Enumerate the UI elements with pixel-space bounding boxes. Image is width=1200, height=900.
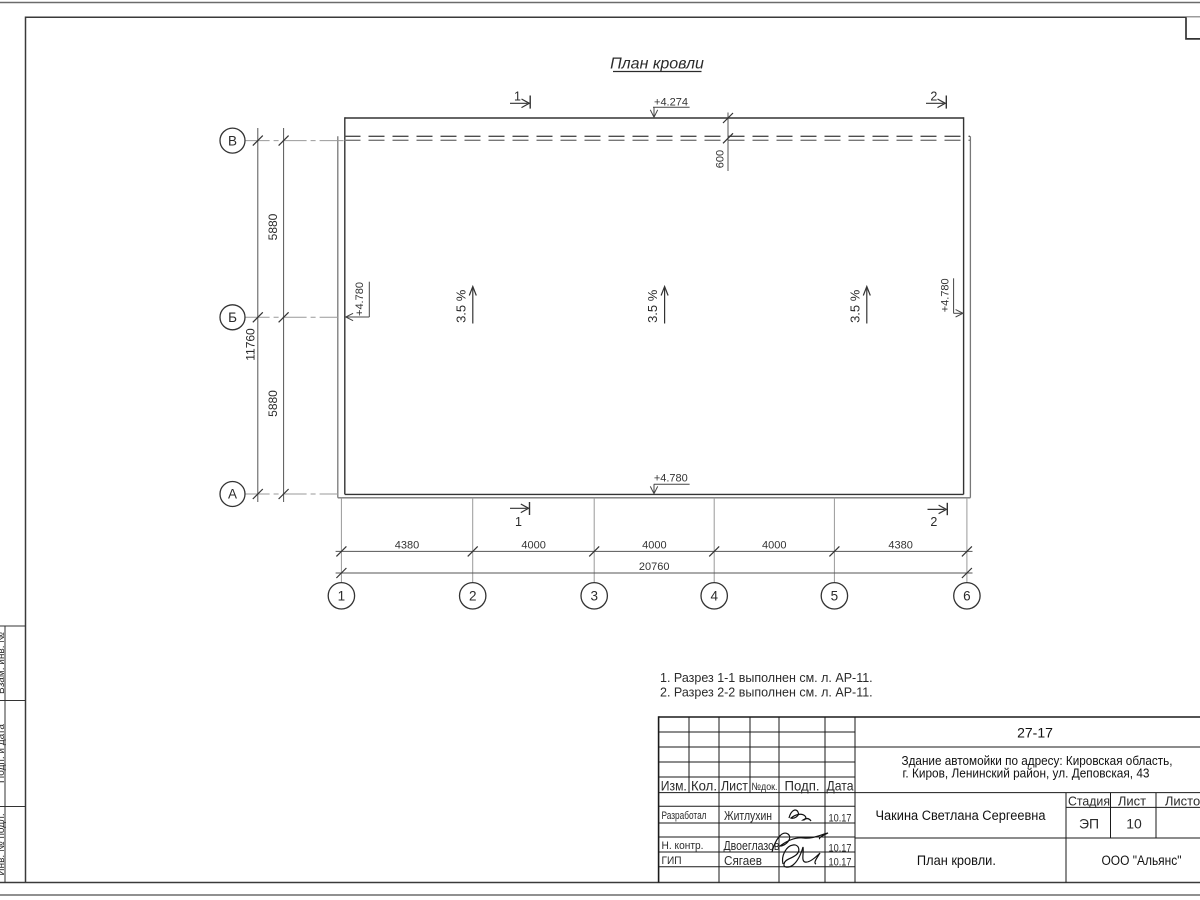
- svg-text:ГИП: ГИП: [662, 855, 682, 867]
- svg-text:2: 2: [930, 515, 937, 529]
- svg-text:ООО "Альянс": ООО "Альянс": [1102, 853, 1182, 868]
- svg-text:+4.780: +4.780: [939, 278, 951, 312]
- svg-text:А: А: [228, 487, 237, 502]
- svg-text:1: 1: [514, 89, 521, 103]
- svg-text:Лист: Лист: [721, 777, 749, 793]
- svg-text:Лист: Лист: [1118, 793, 1146, 808]
- svg-text:Инв. № подл.: Инв. № подл.: [0, 813, 7, 875]
- svg-text:3.5 %: 3.5 %: [847, 289, 862, 323]
- svg-text:Кол.: Кол.: [691, 777, 717, 793]
- svg-text:Сягаев: Сягаев: [724, 854, 762, 868]
- svg-text:Подп.: Подп.: [785, 777, 820, 793]
- svg-text:6: 6: [963, 589, 971, 604]
- svg-text:5880: 5880: [266, 390, 280, 417]
- svg-text:Двоеглазов: Двоеглазов: [724, 839, 780, 853]
- svg-text:3.5 %: 3.5 %: [645, 289, 660, 323]
- svg-text:+4.274: +4.274: [654, 96, 688, 108]
- svg-text:г. Киров, Ленинский район, ул.: г. Киров, Ленинский район, ул. Деповская…: [903, 766, 1150, 781]
- svg-text:План кровли: План кровли: [610, 56, 704, 73]
- svg-text:Разработал: Разработал: [662, 810, 707, 822]
- svg-text:2: 2: [930, 89, 937, 103]
- svg-text:4: 4: [710, 589, 718, 604]
- svg-text:1: 1: [338, 589, 346, 604]
- svg-text:Стадия: Стадия: [1068, 793, 1110, 808]
- svg-text:2. Разрез 2-2 выполнен см. л.: 2. Разрез 2-2 выполнен см. л. АР-11.: [660, 685, 873, 699]
- svg-text:5: 5: [831, 589, 839, 604]
- svg-text:Подп. и дата: Подп. и дата: [0, 724, 7, 783]
- svg-text:4000: 4000: [642, 539, 666, 551]
- svg-text:4380: 4380: [888, 539, 912, 551]
- svg-text:11760: 11760: [244, 328, 258, 361]
- svg-text:10.17: 10.17: [829, 857, 852, 869]
- svg-text:Б: Б: [228, 310, 237, 325]
- svg-text:4000: 4000: [762, 539, 786, 551]
- svg-text:3: 3: [590, 589, 598, 604]
- svg-text:4000: 4000: [521, 539, 545, 551]
- svg-text:+4.780: +4.780: [354, 282, 366, 316]
- svg-text:Житлухин: Житлухин: [724, 809, 772, 823]
- svg-text:1. Разрез 1-1 выполнен см. л.: 1. Разрез 1-1 выполнен см. л. АР-11.: [660, 671, 873, 685]
- svg-text:ЭП: ЭП: [1079, 816, 1099, 832]
- svg-text:20760: 20760: [639, 561, 670, 573]
- svg-text:600: 600: [715, 150, 727, 168]
- svg-text:Н. контр.: Н. контр.: [662, 840, 704, 852]
- svg-text:Листов: Листов: [1165, 793, 1200, 808]
- svg-text:Изм.: Изм.: [661, 777, 687, 793]
- svg-text:5880: 5880: [266, 213, 280, 240]
- svg-text:4380: 4380: [395, 539, 419, 551]
- svg-text:10: 10: [1126, 816, 1142, 832]
- svg-text:План кровли.: План кровли.: [917, 852, 996, 868]
- svg-text:Дата: Дата: [827, 777, 854, 793]
- svg-text:В: В: [228, 133, 237, 148]
- svg-text:Чакина Светлана Сергеевна: Чакина Светлана Сергеевна: [876, 808, 1046, 823]
- svg-text:+4.780: +4.780: [654, 473, 688, 485]
- svg-text:2: 2: [469, 589, 477, 604]
- svg-text:27-17: 27-17: [1017, 724, 1053, 740]
- svg-text:Взам. инв. №: Взам. инв. №: [0, 632, 7, 694]
- svg-text:3.5 %: 3.5 %: [453, 289, 468, 323]
- svg-text:№док.: №док.: [752, 781, 778, 793]
- svg-text:10.17: 10.17: [829, 812, 852, 824]
- svg-text:1: 1: [515, 515, 522, 529]
- svg-text:10.17: 10.17: [829, 842, 852, 854]
